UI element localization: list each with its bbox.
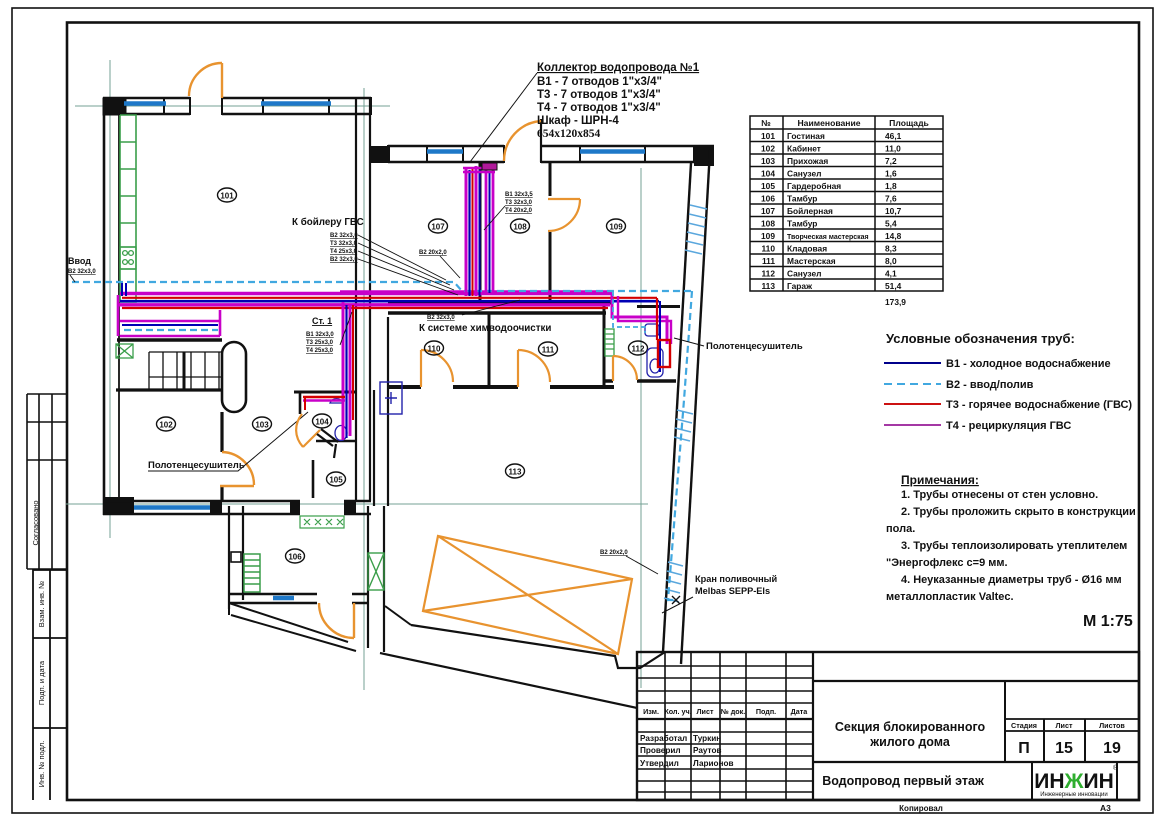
svg-text:В1 32х3,0: В1 32х3,0 bbox=[306, 332, 334, 338]
svg-text:В2 20х2,0: В2 20х2,0 bbox=[600, 550, 628, 556]
svg-text:Т3 - горячее водоснабжение (ГВ: Т3 - горячее водоснабжение (ГВС) bbox=[946, 399, 1132, 411]
svg-text:Взам. инв. №: Взам. инв. № bbox=[37, 581, 46, 627]
svg-text:Кабинет: Кабинет bbox=[787, 144, 821, 154]
svg-text:Ввод: Ввод bbox=[68, 256, 91, 266]
svg-text:113: 113 bbox=[509, 468, 522, 477]
svg-text:Т4 25х3,0: Т4 25х3,0 bbox=[306, 348, 334, 354]
svg-text:Т3 32х3,0: Т3 32х3,0 bbox=[505, 200, 533, 206]
svg-text:105: 105 bbox=[761, 181, 775, 191]
svg-text:Ст. 1: Ст. 1 bbox=[312, 316, 332, 326]
svg-text:105: 105 bbox=[329, 476, 343, 485]
svg-text:П: П bbox=[1018, 740, 1030, 757]
svg-text:Т4 - рециркуляция ГВС: Т4 - рециркуляция ГВС bbox=[946, 420, 1071, 432]
svg-text:Т4 20х2,0: Т4 20х2,0 bbox=[505, 208, 533, 214]
svg-text:4. Неуказанные диаметры труб -: 4. Неуказанные диаметры труб - Ø16 мм bbox=[901, 574, 1122, 586]
svg-text:В2 20х2,0: В2 20х2,0 bbox=[419, 250, 447, 256]
svg-text:Дата: Дата bbox=[791, 707, 809, 716]
svg-text:Условные обозначения труб:: Условные обозначения труб: bbox=[886, 331, 1075, 346]
svg-text:Лист: Лист bbox=[697, 707, 714, 716]
svg-text:Туркин: Туркин bbox=[693, 734, 721, 743]
svg-text:В2 32х3,0: В2 32х3,0 bbox=[330, 257, 358, 263]
svg-text:106: 106 bbox=[288, 553, 302, 562]
svg-text:5,4: 5,4 bbox=[885, 219, 897, 229]
svg-text:Гардеробная: Гардеробная bbox=[787, 181, 841, 191]
svg-text:101: 101 bbox=[761, 131, 775, 141]
svg-text:К бойлеру ГВС: К бойлеру ГВС bbox=[292, 217, 364, 228]
svg-text:Полотенцесушитель: Полотенцесушитель bbox=[148, 460, 245, 471]
svg-text:Творческая мастерская: Творческая мастерская bbox=[787, 234, 869, 241]
svg-text:102: 102 bbox=[159, 421, 173, 430]
svg-text:Мастерская: Мастерская bbox=[787, 256, 836, 266]
svg-text:108: 108 bbox=[513, 223, 527, 232]
svg-text:1. Трубы отнесены от стен усло: 1. Трубы отнесены от стен условно. bbox=[901, 489, 1098, 501]
svg-text:металлопластик Valtec.: металлопластик Valtec. bbox=[886, 591, 1014, 603]
svg-text:103: 103 bbox=[255, 421, 269, 430]
svg-text:А3: А3 bbox=[1100, 803, 1111, 813]
svg-text:8,3: 8,3 bbox=[885, 244, 897, 254]
svg-text:7,2: 7,2 bbox=[885, 156, 897, 166]
svg-text:№: № bbox=[761, 118, 771, 128]
svg-text:110: 110 bbox=[761, 244, 775, 254]
svg-text:7,6: 7,6 bbox=[885, 194, 897, 204]
svg-text:Т3 25х3,0: Т3 25х3,0 bbox=[306, 340, 334, 346]
svg-text:Инженерные инновации: Инженерные инновации bbox=[1040, 792, 1108, 798]
svg-text:104: 104 bbox=[315, 418, 329, 427]
svg-text:Т4 - 7 отводов 1"х3/4": Т4 - 7 отводов 1"х3/4" bbox=[537, 102, 661, 114]
svg-text:ИНЖИН: ИНЖИН bbox=[1034, 770, 1114, 793]
svg-text:В2 32х3,0: В2 32х3,0 bbox=[427, 315, 455, 321]
svg-text:Кол. уч.: Кол. уч. bbox=[664, 707, 691, 716]
svg-text:Гараж: Гараж bbox=[787, 281, 812, 291]
svg-text:113: 113 bbox=[761, 281, 775, 291]
svg-text:Гостиная: Гостиная bbox=[787, 131, 825, 141]
svg-text:Стадия: Стадия bbox=[1011, 721, 1037, 730]
svg-text:В1 - холодное водоснабжение: В1 - холодное водоснабжение bbox=[946, 358, 1111, 370]
svg-text:Прихожая: Прихожая bbox=[787, 156, 828, 166]
svg-text:Кладовая: Кладовая bbox=[787, 244, 827, 254]
svg-text:102: 102 bbox=[761, 144, 775, 154]
svg-text:Кран поливочный: Кран поливочный bbox=[695, 574, 777, 584]
svg-text:14,8: 14,8 bbox=[885, 231, 902, 241]
svg-text:Шкаф - ШРН-4: Шкаф - ШРН-4 bbox=[537, 115, 619, 127]
svg-text:Тамбур: Тамбур bbox=[787, 194, 817, 204]
svg-text:Подп. и дата: Подп. и дата bbox=[37, 660, 46, 705]
svg-text:пола.: пола. bbox=[886, 523, 915, 535]
svg-text:2. Трубы проложить скрыто в ко: 2. Трубы проложить скрыто в конструкции bbox=[901, 506, 1136, 518]
svg-text:Водопровод первый этаж: Водопровод первый этаж bbox=[822, 774, 984, 788]
svg-text:жилого дома: жилого дома bbox=[869, 735, 951, 749]
svg-text:15: 15 bbox=[1055, 740, 1073, 757]
svg-text:Т3 - 7 отводов 1"х3/4": Т3 - 7 отводов 1"х3/4" bbox=[537, 89, 661, 101]
svg-text:Инв. № подл.: Инв. № подл. bbox=[37, 741, 46, 788]
svg-text:19: 19 bbox=[1103, 740, 1121, 757]
svg-text:®: ® bbox=[1113, 764, 1119, 772]
svg-text:Примечания:: Примечания: bbox=[901, 473, 979, 487]
svg-text:109: 109 bbox=[609, 223, 623, 232]
svg-text:Полотенцесушитель: Полотенцесушитель bbox=[706, 341, 803, 352]
svg-text:654х120х854: 654х120х854 bbox=[537, 128, 601, 140]
svg-text:112: 112 bbox=[632, 345, 645, 354]
svg-text:8,0: 8,0 bbox=[885, 256, 897, 266]
svg-text:Тамбур: Тамбур bbox=[787, 219, 817, 229]
svg-text:К системе химводоочистки: К системе химводоочистки bbox=[419, 323, 551, 334]
svg-text:Бойлерная: Бойлерная bbox=[787, 206, 833, 216]
svg-text:107: 107 bbox=[431, 223, 445, 232]
svg-text:Согласовано: Согласовано bbox=[31, 500, 40, 545]
svg-text:Санузел: Санузел bbox=[787, 169, 821, 179]
svg-text:№ док.: № док. bbox=[721, 707, 746, 716]
svg-text:111: 111 bbox=[762, 256, 775, 266]
svg-text:106: 106 bbox=[761, 194, 775, 204]
svg-text:110: 110 bbox=[428, 345, 441, 354]
svg-text:107: 107 bbox=[761, 206, 775, 216]
svg-text:173,9: 173,9 bbox=[885, 297, 906, 307]
svg-text:3. Трубы теплоизолировать утеп: 3. Трубы теплоизолировать утеплителем bbox=[901, 540, 1127, 552]
svg-text:Площадь: Площадь bbox=[889, 118, 929, 128]
svg-text:101: 101 bbox=[220, 192, 234, 201]
svg-text:51,4: 51,4 bbox=[885, 281, 902, 291]
svg-text:10,7: 10,7 bbox=[885, 206, 902, 216]
svg-text:Копировал: Копировал bbox=[899, 804, 943, 813]
svg-text:Проверил: Проверил bbox=[640, 746, 681, 755]
svg-text:Т4 25х3,0: Т4 25х3,0 bbox=[330, 249, 358, 255]
svg-text:Утвердил: Утвердил bbox=[640, 759, 679, 768]
svg-text:1,8: 1,8 bbox=[885, 181, 897, 191]
svg-text:В2 - ввод/полив: В2 - ввод/полив bbox=[946, 379, 1034, 391]
svg-text:111: 111 bbox=[542, 346, 555, 355]
svg-text:Лист: Лист bbox=[1056, 721, 1073, 730]
svg-text:11,0: 11,0 bbox=[885, 144, 901, 154]
svg-text:В2 32х3,0: В2 32х3,0 bbox=[68, 269, 96, 275]
svg-text:103: 103 bbox=[761, 156, 775, 166]
svg-text:Т3 32х3,0: Т3 32х3,0 bbox=[330, 241, 358, 247]
svg-text:Разработал: Разработал bbox=[640, 733, 687, 743]
svg-text:104: 104 bbox=[761, 169, 775, 179]
svg-text:109: 109 bbox=[761, 231, 775, 241]
svg-text:108: 108 bbox=[761, 219, 775, 229]
svg-text:Наименование: Наименование bbox=[797, 118, 860, 128]
svg-text:Ларионов: Ларионов bbox=[693, 759, 734, 768]
svg-text:Изм.: Изм. bbox=[643, 707, 659, 716]
svg-text:Секция блокированного: Секция блокированного bbox=[835, 720, 986, 734]
svg-text:46,1: 46,1 bbox=[885, 131, 902, 141]
svg-text:1,6: 1,6 bbox=[885, 169, 897, 179]
svg-text:Листов: Листов bbox=[1099, 721, 1125, 730]
svg-text:В2 32х3,0: В2 32х3,0 bbox=[330, 233, 358, 239]
svg-text:"Энергофлекс с=9 мм.: "Энергофлекс с=9 мм. bbox=[886, 557, 1008, 569]
svg-text:В1 32х3,5: В1 32х3,5 bbox=[505, 192, 533, 198]
svg-text:Melbas SEPP-Els: Melbas SEPP-Els bbox=[695, 586, 770, 596]
svg-text:В1 - 7 отводов 1"х3/4": В1 - 7 отводов 1"х3/4" bbox=[537, 76, 662, 88]
svg-text:Подп.: Подп. bbox=[756, 707, 776, 716]
svg-text:112: 112 bbox=[761, 269, 775, 279]
svg-text:Раутов: Раутов bbox=[693, 746, 722, 755]
svg-text:Коллектор водопровода №1: Коллектор водопровода №1 bbox=[537, 62, 700, 74]
svg-text:4,1: 4,1 bbox=[885, 269, 897, 279]
svg-text:Санузел: Санузел bbox=[787, 269, 821, 279]
svg-text:М 1:75: М 1:75 bbox=[1083, 613, 1133, 630]
